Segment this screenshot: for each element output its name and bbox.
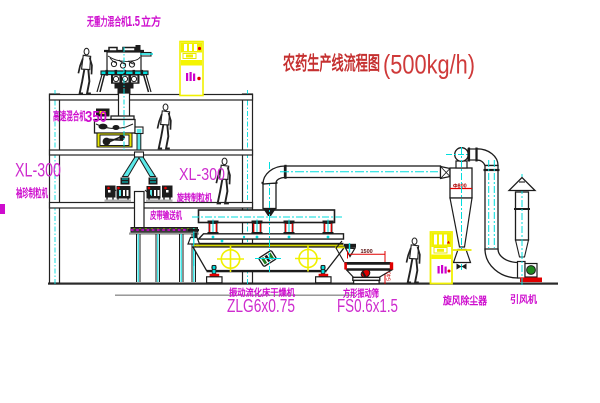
- svg-text:1.5: 1.5: [127, 13, 140, 30]
- svg-text:XL-300: XL-300: [179, 164, 225, 184]
- svg-text:Φ800: Φ800: [453, 184, 467, 190]
- svg-text:ZLG6x0.75: ZLG6x0.75: [227, 295, 295, 316]
- svg-text:引风机: 引风机: [510, 293, 537, 306]
- svg-text:农药生产线流程图: 农药生产线流程图: [282, 52, 380, 75]
- svg-text:袖珍制粒机: 袖珍制粒机: [16, 186, 48, 200]
- svg-text:XL-300: XL-300: [15, 161, 61, 182]
- svg-text:350: 350: [85, 109, 107, 126]
- svg-text:立方: 立方: [141, 15, 161, 29]
- svg-text:高速混合机: 高速混合机: [53, 109, 86, 123]
- svg-text:旋转制粒机: 旋转制粒机: [176, 192, 212, 204]
- svg-text:FS0.6x1.5: FS0.6x1.5: [337, 295, 398, 316]
- svg-text:(500kg/h): (500kg/h): [383, 50, 475, 80]
- svg-text:540: 540: [387, 272, 393, 281]
- svg-text:1500: 1500: [361, 249, 373, 255]
- svg-text:皮带输送机: 皮带输送机: [149, 209, 182, 222]
- svg-text:无重力混合机: 无重力混合机: [86, 15, 128, 29]
- svg-text:旋风除尘器: 旋风除尘器: [442, 294, 487, 307]
